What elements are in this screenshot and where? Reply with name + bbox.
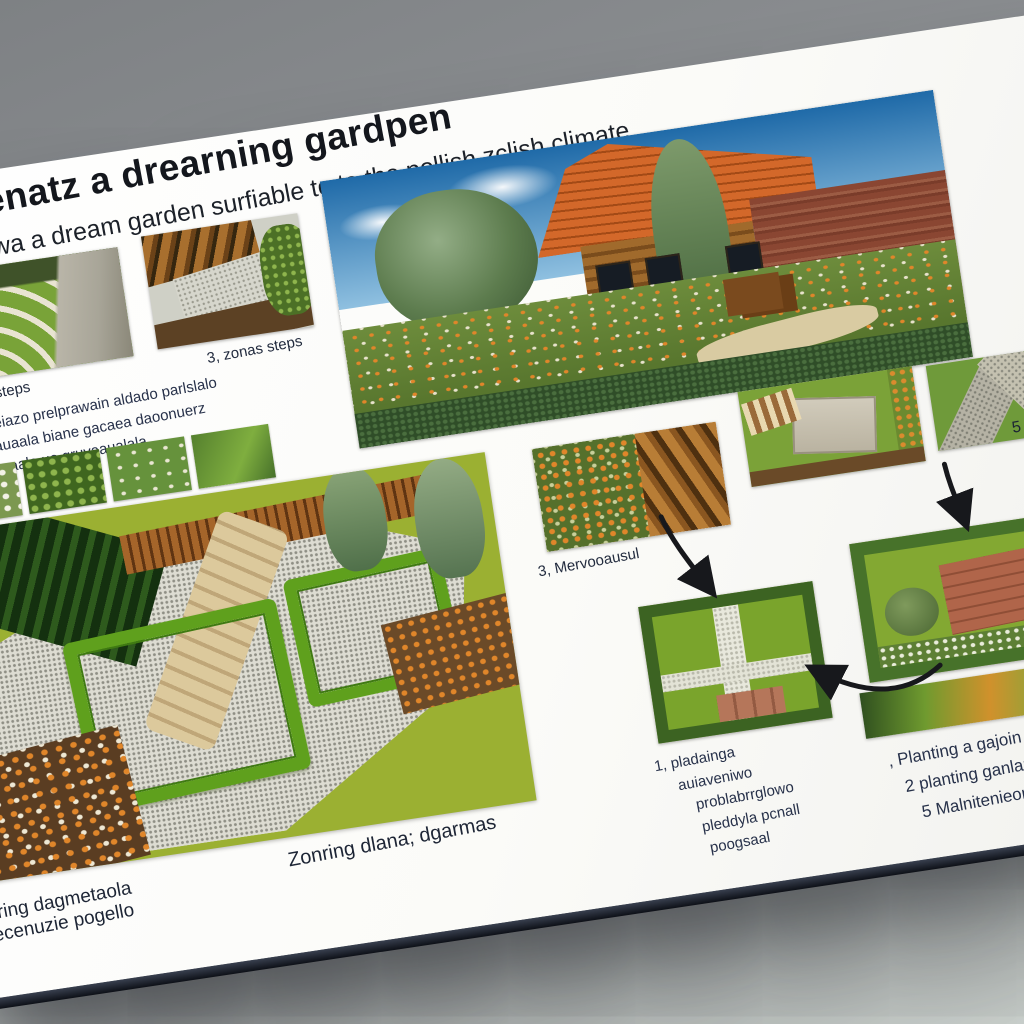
hedged-brick-patio-photo (849, 510, 1024, 683)
steps-list-center: 1, pladainga auiaveniwo problabrrglowo p… (652, 732, 805, 867)
herb-plants-segment (106, 436, 192, 501)
scene-background: { "header": { "title": "srgenatz a drear… (0, 0, 1024, 1024)
stone-slab-patio (792, 396, 878, 454)
round-shrub (882, 584, 942, 639)
wooden-deck-slats (635, 422, 731, 537)
white-flowers-segment (0, 462, 22, 527)
meadow-flowers-deck-photo (532, 422, 731, 552)
brick-patio (939, 542, 1024, 635)
arrow-down-icon (944, 463, 963, 520)
zoned-bed-photo (141, 213, 314, 349)
gravel-grid-garden-photo (638, 581, 832, 743)
steps-list-right: , Planting a gajoin 2 planting ganlang 5… (886, 721, 1024, 831)
green-leaves-segment (21, 449, 107, 514)
bottom-left-caption: nring dagmetaola grecenuzie pogello (0, 878, 137, 951)
terraced-steps-photo (0, 247, 134, 380)
poster-card: srgenatz a drearning gardpen owa a dream… (0, 11, 1024, 1002)
foliage-segment (190, 424, 276, 489)
